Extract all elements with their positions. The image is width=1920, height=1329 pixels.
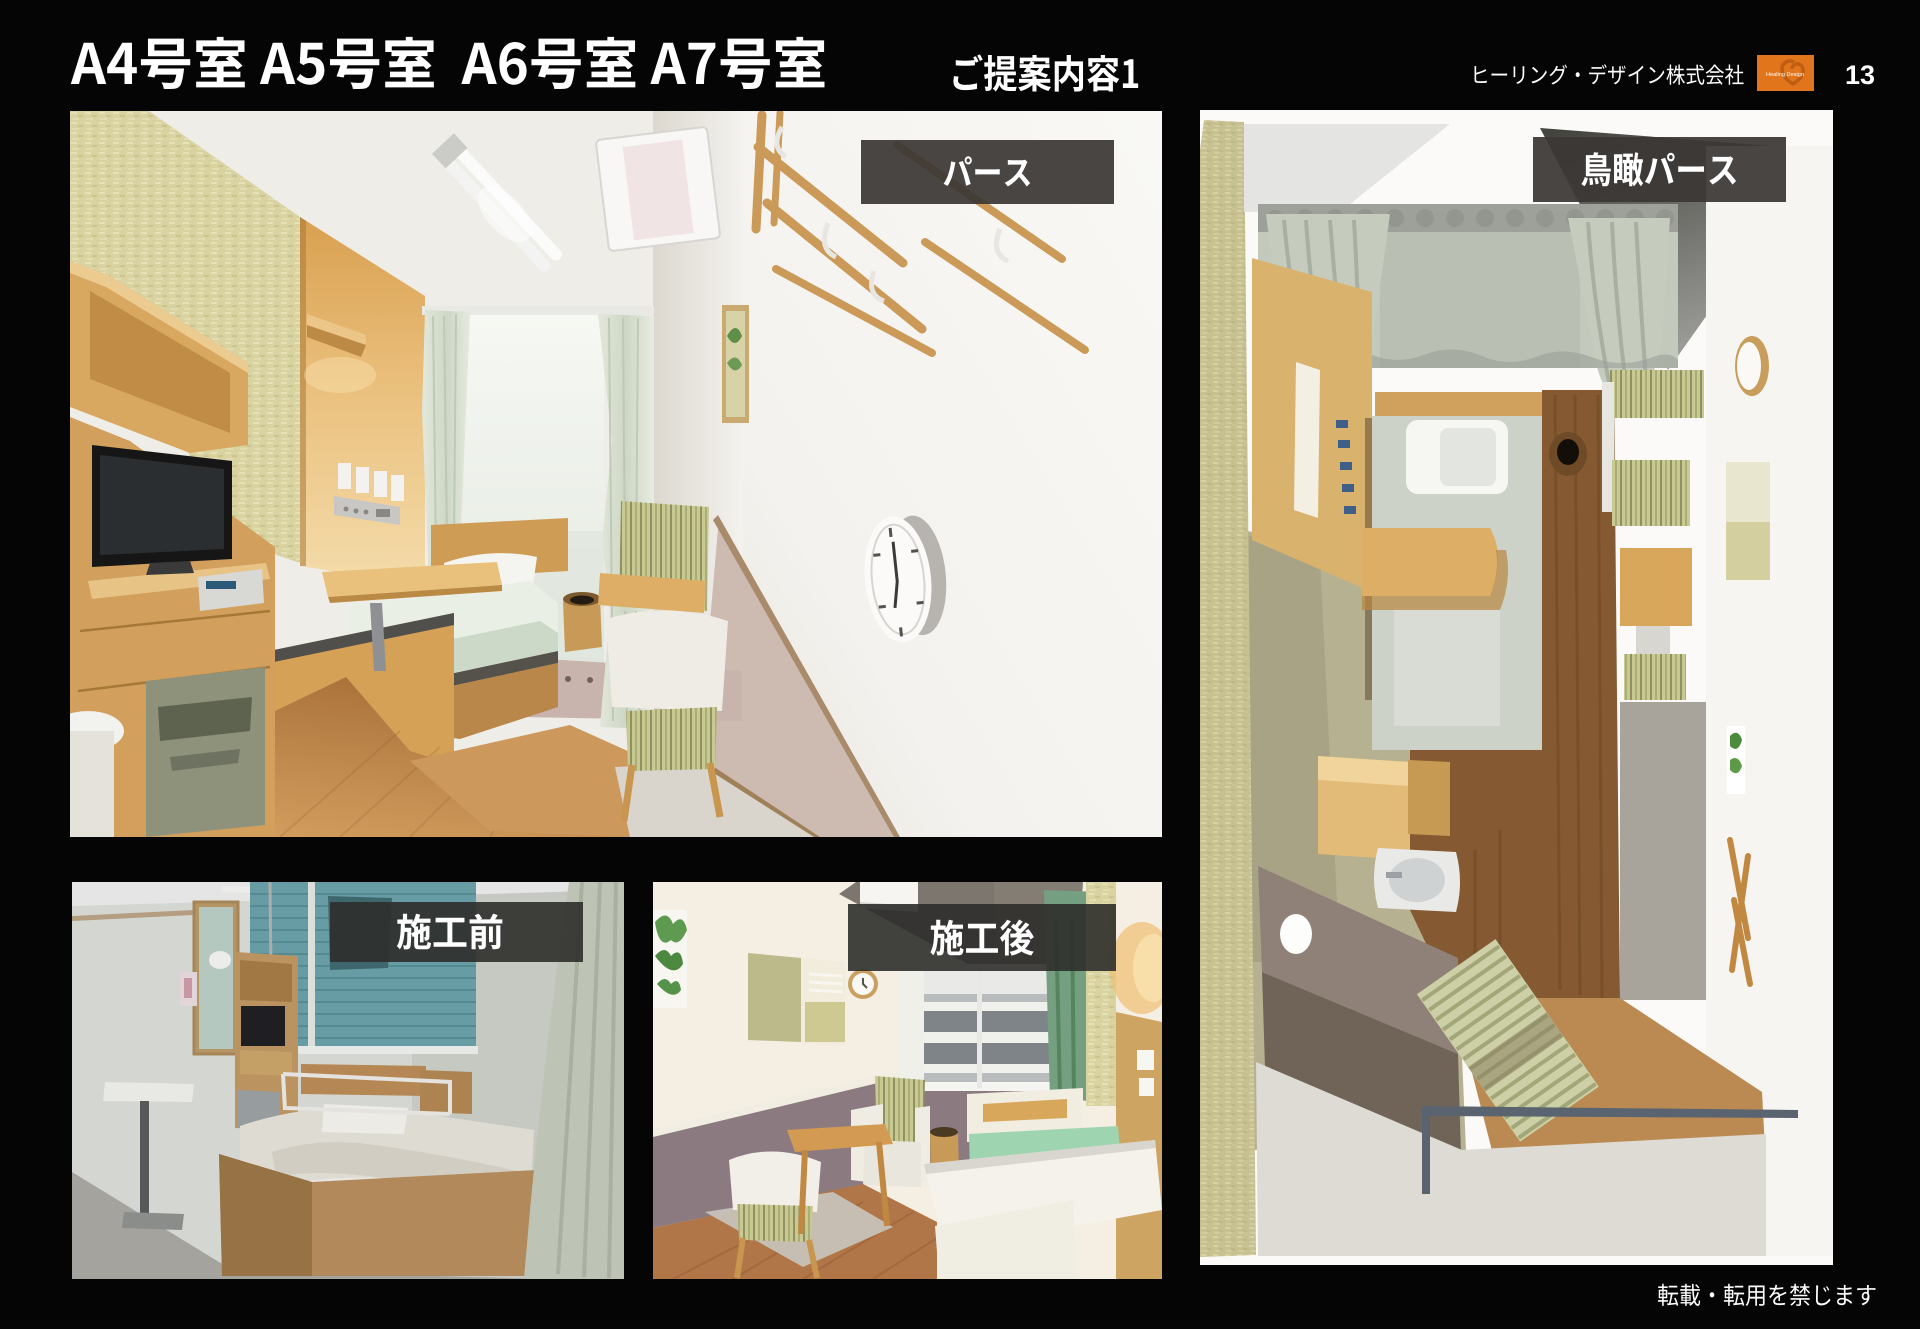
svg-text:Healing Design: Healing Design [1766, 72, 1804, 78]
svg-text:13: 13 [1845, 60, 1875, 90]
